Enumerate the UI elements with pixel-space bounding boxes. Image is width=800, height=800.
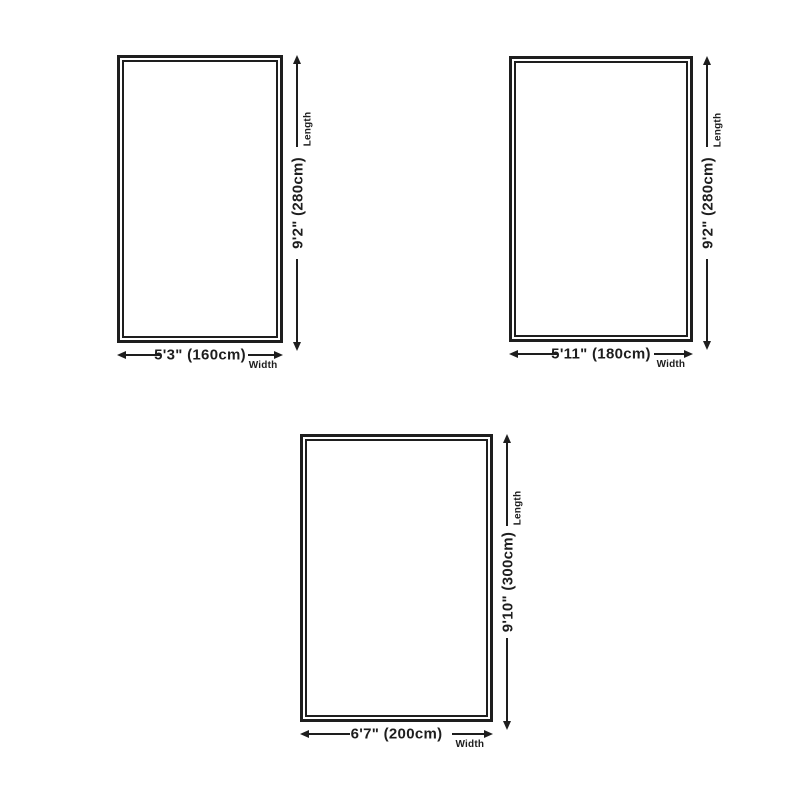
arrow-down-icon — [703, 341, 711, 350]
rug-size-diagram-200x300: Length 9'10" (300cm) 6'7" (200cm) Width — [300, 434, 493, 722]
rug-inner-outline — [514, 61, 688, 337]
rug-outline — [509, 56, 693, 342]
dimension-line-bottom — [706, 259, 708, 343]
rug-size-diagram-160x280: Length 9'2" (280cm) 5'3" (160cm) Width — [117, 55, 283, 343]
length-value: 9'2" (280cm) — [290, 157, 307, 249]
dimension-line-bottom — [506, 638, 508, 723]
dimension-line-bottom — [296, 259, 298, 344]
length-caption: Length — [303, 112, 314, 147]
arrow-right-icon — [684, 350, 693, 358]
width-caption: Width — [455, 739, 484, 750]
width-dimension: 5'11" (180cm) Width — [509, 347, 693, 373]
length-dimension: Length 9'2" (280cm) — [293, 55, 329, 351]
dimension-line-right — [654, 353, 686, 355]
arrow-down-icon — [503, 721, 511, 730]
dimension-line-right — [248, 354, 276, 356]
width-value: 6'7" (200cm) — [351, 726, 443, 743]
length-caption: Length — [713, 112, 724, 147]
width-value: 5'11" (180cm) — [551, 346, 651, 363]
arrow-right-icon — [274, 351, 283, 359]
arrow-right-icon — [484, 730, 493, 738]
dimension-line-top — [296, 62, 298, 147]
length-dimension: Length 9'10" (300cm) — [503, 434, 539, 730]
width-caption: Width — [657, 359, 686, 370]
rug-size-diagram-180x280: Length 9'2" (280cm) 5'11" (180cm) Width — [509, 56, 693, 342]
dimension-line-top — [506, 441, 508, 526]
dimension-line-left — [307, 733, 350, 735]
dimension-line-top — [706, 63, 708, 147]
size-diagram-canvas: Length 9'2" (280cm) 5'3" (160cm) Width L… — [0, 0, 800, 800]
length-value: 9'10" (300cm) — [500, 532, 517, 632]
arrow-down-icon — [293, 342, 301, 351]
dimension-line-right — [452, 733, 486, 735]
rug-outline — [300, 434, 493, 722]
rug-inner-outline — [305, 439, 488, 717]
width-dimension: 5'3" (160cm) Width — [117, 348, 283, 374]
width-dimension: 6'7" (200cm) Width — [300, 727, 493, 753]
length-value: 9'2" (280cm) — [700, 157, 717, 249]
rug-inner-outline — [122, 60, 278, 338]
width-value: 5'3" (160cm) — [154, 347, 246, 364]
width-caption: Width — [249, 360, 278, 371]
rug-outline — [117, 55, 283, 343]
length-caption: Length — [513, 491, 524, 526]
length-dimension: Length 9'2" (280cm) — [703, 56, 739, 350]
